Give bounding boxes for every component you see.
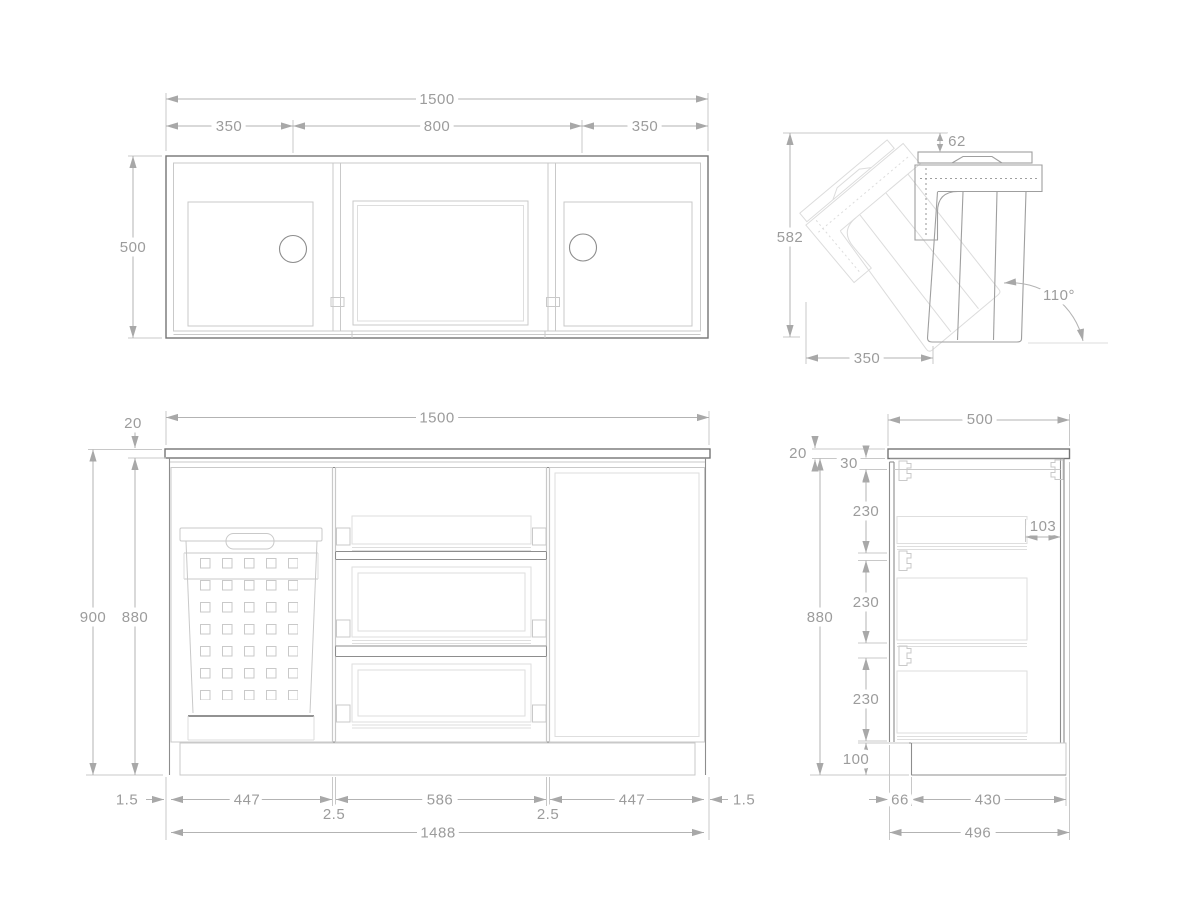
dim-front-gap-inner-left: 2.5 [323,806,345,823]
dim-side-toe-recess: 66 [891,792,909,809]
basket-perforations [200,558,298,700]
dim-front-gap-inner-right: 2.5 [537,806,559,823]
front-hamper-basket [180,528,322,740]
side-countertop [888,449,1070,459]
dim-side-drawer-inset: 103 [1030,518,1057,535]
front-plinth [180,743,695,775]
cabinet-technical-drawing: 1500 350 800 350 500 62 582 350 [0,0,1200,900]
dim-plan-bay-center: 800 [424,118,451,135]
hinge-clip-icon [899,646,911,666]
dim-side-top-rail: 30 [840,455,858,472]
dim-tilt-depth: 350 [854,350,881,367]
dim-tilt-open-height: 582 [777,229,804,246]
side-drawer-1-box [897,517,1027,544]
side-drawer-2-box [897,578,1027,640]
dim-front-left: 447 [234,792,261,809]
side-plinth [912,743,1067,775]
dim-plan-depth: 500 [120,239,147,256]
plan-carcass-outline [166,156,708,338]
plan-drawer-box [353,201,528,325]
side-drawing [888,449,1070,775]
front-countertop [165,449,710,458]
dim-side-drawer-mid: 230 [853,594,880,611]
dim-side-drawer-bottom: 230 [853,691,880,708]
dim-front-fronts-width: 1488 [420,825,455,842]
dim-front-top-thickness: 20 [124,415,142,432]
dim-plan-bay-right: 350 [632,118,659,135]
dim-tilt-lid-gap: 62 [948,133,966,150]
dim-front-body-height: 880 [122,609,149,626]
hinge-clip-icon [899,551,911,571]
dim-front-gap-outer-left: 1.5 [116,792,138,809]
dim-side-drawer-top: 230 [853,503,880,520]
front-right-door [550,468,705,743]
hamper-closed [915,152,1042,342]
plan-left-bay-panel [188,202,313,326]
plan-view: 1500 350 800 350 500 [120,91,708,338]
dim-side-base-depth: 496 [965,825,992,842]
dim-front-total-width: 1500 [419,410,454,427]
front-drawing [165,449,710,775]
dim-plan-bay-left: 350 [216,118,243,135]
plan-left-hole [280,236,307,263]
drawer-3-front [336,657,547,743]
dim-front-gap-outer-right: 1.5 [733,792,755,809]
dim-side-body-height: 880 [807,609,834,626]
front-view: 20 1500 900 880 1.5 447 2.5 586 2.5 447 … [80,410,755,842]
dim-side-top-thickness: 20 [789,445,807,462]
dim-side-plinth-depth: 430 [975,792,1002,809]
front-drawers [336,468,547,743]
side-drawer-3-box [897,671,1027,733]
hamper-open-ghost [797,134,1016,361]
side-view: 500 20 30 230 103 880 230 230 100 66 430… [789,411,1069,842]
dim-front-center: 586 [427,792,454,809]
tilt-dimensions: 62 582 350 110° [777,133,1083,367]
plan-right-bay-panel [564,202,692,326]
drawer-1-front [336,468,547,552]
drawing-canvas: 1500 350 800 350 500 62 582 350 [0,0,1200,900]
dim-front-right: 447 [619,792,646,809]
plan-dimensions: 1500 350 800 350 500 [120,91,708,338]
plan-right-hole [570,234,597,261]
dim-side-plinth-height: 100 [843,751,870,768]
dim-plan-total-width: 1500 [419,91,454,108]
dim-tilt-open-angle: 110° [1043,287,1075,304]
tilt-view: 62 582 350 110° [777,133,1108,367]
front-dimensions: 20 1500 900 880 1.5 447 2.5 586 2.5 447 … [80,410,755,842]
dim-front-total-height: 900 [80,609,107,626]
dim-side-depth: 500 [967,411,994,428]
hinge-clip-icon [899,461,911,481]
basket-rim-bar [180,528,322,541]
plan-drawing [166,156,708,338]
drawer-2-front [336,560,547,647]
tilt-drawing [797,134,1108,361]
